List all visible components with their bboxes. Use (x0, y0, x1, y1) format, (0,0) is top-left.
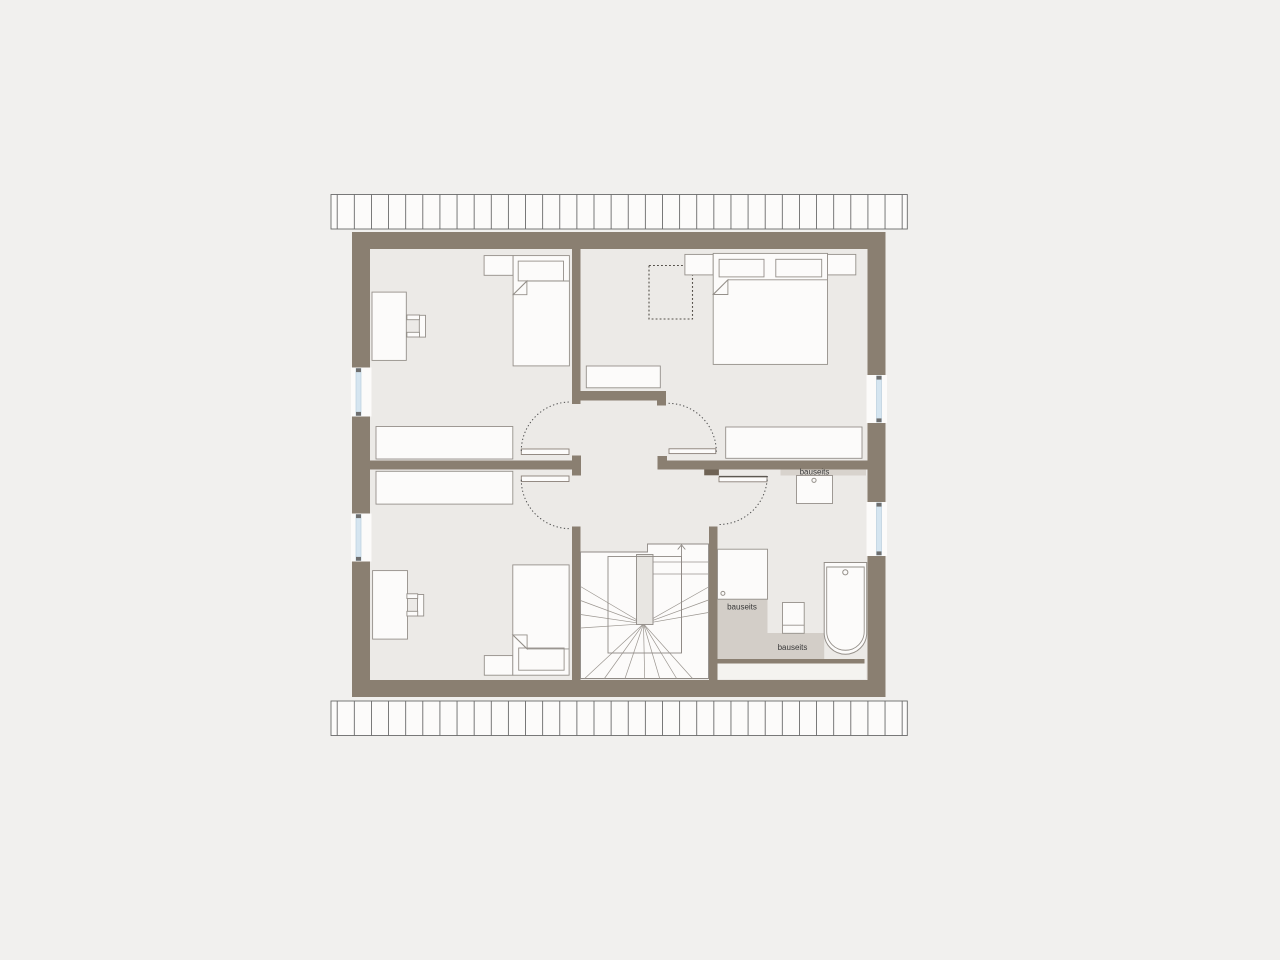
svg-text:bauseits: bauseits (778, 643, 808, 652)
svg-text:bauseits: bauseits (727, 603, 757, 612)
svg-text:bauseits: bauseits (800, 468, 830, 477)
